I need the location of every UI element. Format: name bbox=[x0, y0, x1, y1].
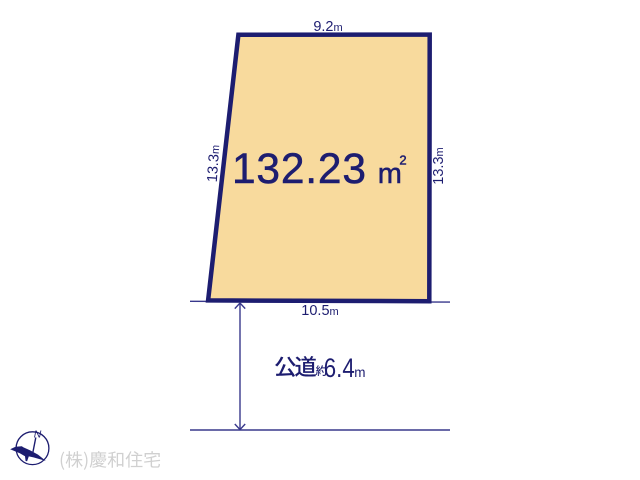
svg-text:13.3m: 13.3m bbox=[431, 147, 447, 184]
svg-text:6.4: 6.4 bbox=[324, 354, 355, 383]
svg-text:9.2m: 9.2m bbox=[313, 19, 342, 35]
svg-text:m: m bbox=[354, 365, 365, 380]
svg-text:10.5m: 10.5m bbox=[301, 303, 338, 319]
svg-text:13.3m: 13.3m bbox=[205, 144, 224, 182]
